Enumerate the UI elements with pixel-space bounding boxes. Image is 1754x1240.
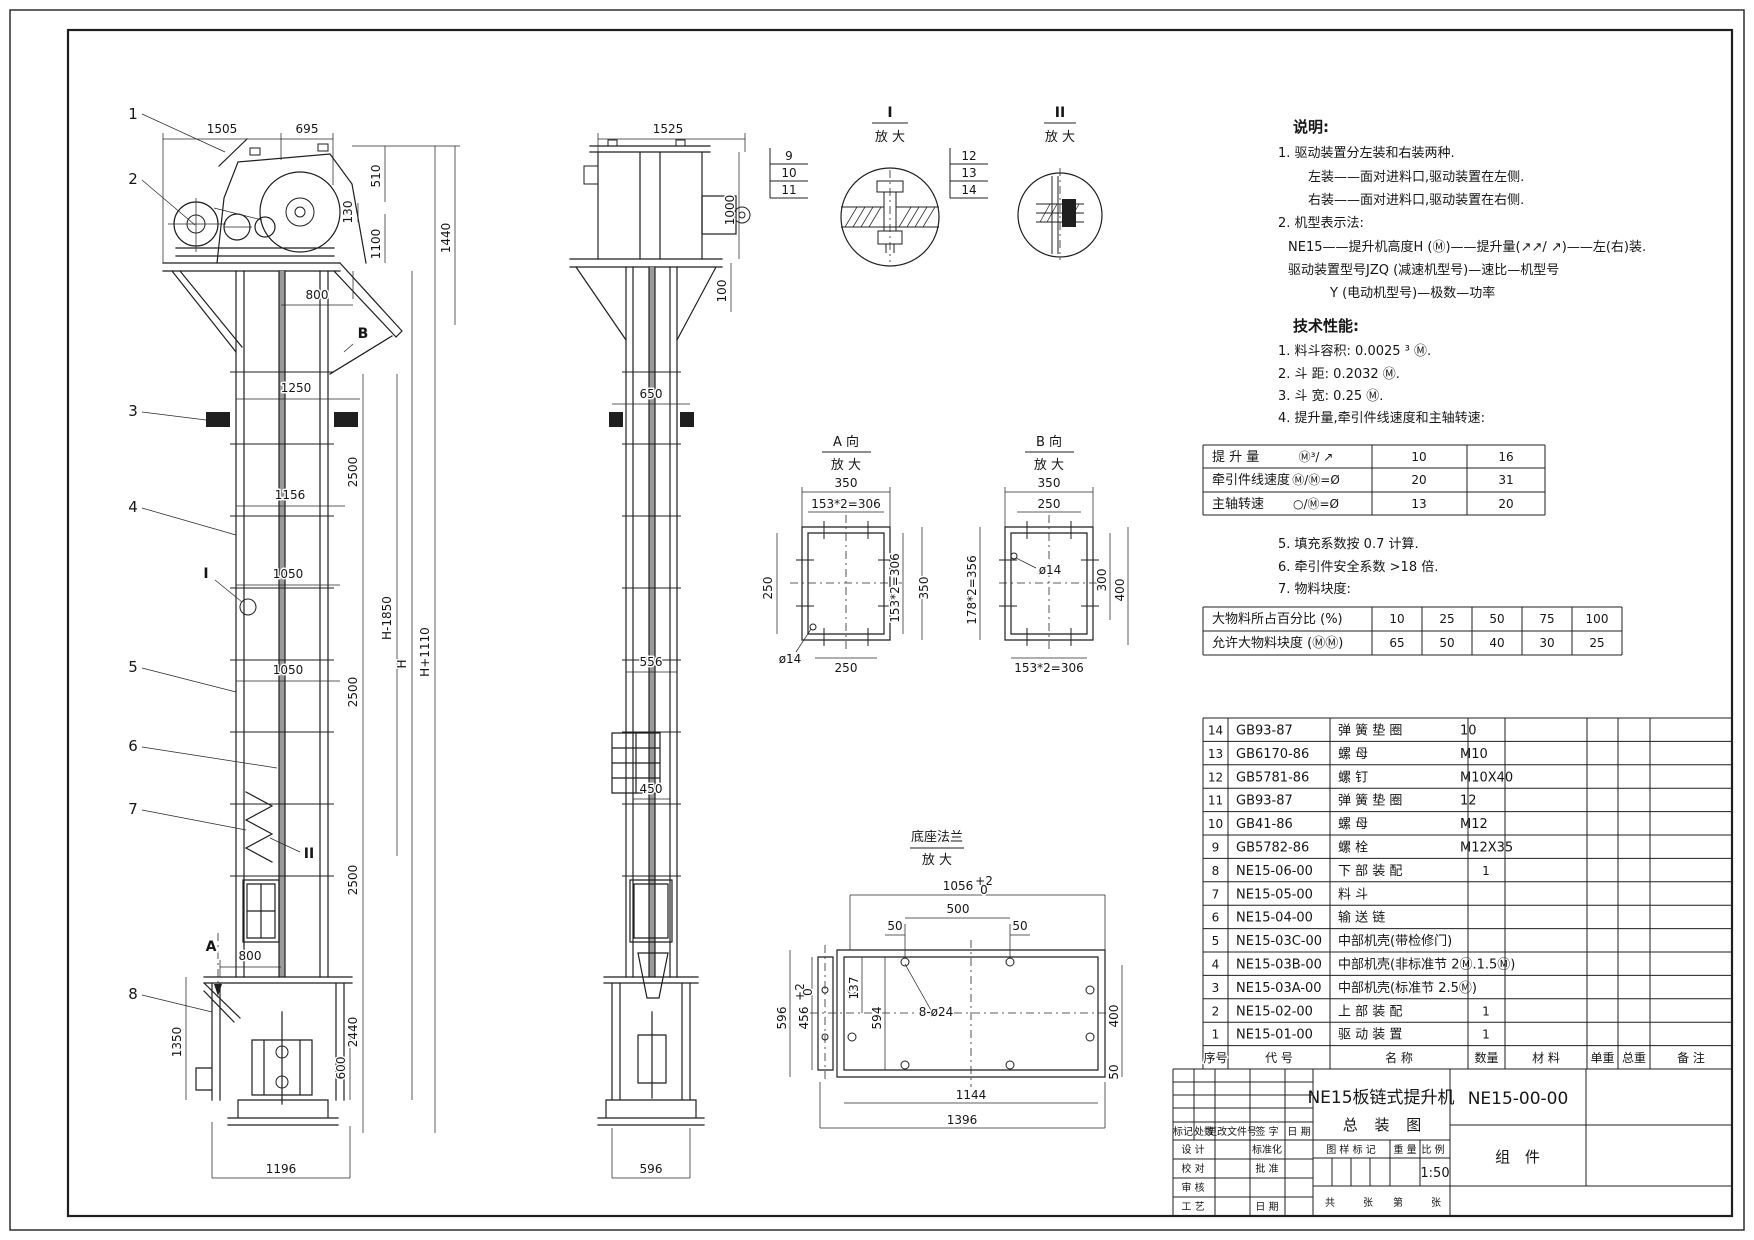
bom-spec: M10X40 — [1460, 770, 1513, 785]
bolt-hole — [1086, 986, 1094, 994]
title-block-cell: 张 — [1363, 1197, 1373, 1209]
title-block-cell: 设 计 — [1181, 1143, 1204, 1156]
performance-value: 16 — [1498, 450, 1513, 464]
head-bolt — [676, 140, 685, 146]
bom-spec: 10 — [1460, 724, 1477, 739]
title-block-cell: 标记 — [1173, 1126, 1193, 1138]
bom-header: 单重 — [1590, 1051, 1614, 1065]
bom-code: GB93-87 — [1236, 724, 1293, 739]
front-dim-label: II — [304, 846, 314, 862]
bom-qty: 1 — [1482, 864, 1490, 878]
bom-header: 总重 — [1622, 1051, 1646, 1065]
bom-name: 上 部 装 配 — [1338, 1004, 1402, 1019]
bom-seq: 2 — [1212, 1004, 1220, 1018]
part-balloon: 1 — [128, 105, 138, 123]
bom-name: 螺 母 — [1338, 817, 1368, 832]
head-bolt — [318, 144, 328, 151]
detail-i-leader — [215, 580, 242, 602]
lump-value: 25 — [1589, 636, 1604, 650]
bolt-hole — [1006, 958, 1014, 966]
title-block-cell: 更改文件号 — [1207, 1125, 1257, 1138]
bom-code: GB5782-86 — [1236, 841, 1309, 856]
note-line: Y (电动机型号)—极数—功率 — [1329, 285, 1495, 301]
part-balloon: 4 — [128, 498, 138, 516]
section-dim-label: 153*2=306 — [1014, 661, 1084, 675]
front-dim-label: 695 — [296, 122, 319, 136]
bolt-hole — [901, 958, 909, 966]
bom-seq: 12 — [1208, 770, 1223, 784]
bom-name: 弹 簧 垫 圈 — [1338, 793, 1402, 809]
front-dim-label: 1440 — [439, 223, 453, 254]
section-dim-label: 350 — [917, 577, 931, 600]
base-dim-label: 596 — [775, 1007, 789, 1030]
front-dim-label: 800 — [239, 949, 262, 963]
front-boot — [196, 977, 352, 1125]
base-dim-label: 456 — [797, 1007, 811, 1030]
lump-value: 65 — [1389, 636, 1404, 650]
part-balloon: 5 — [128, 658, 138, 676]
bom-name: 料 斗 — [1338, 887, 1368, 902]
bom-name: 中部机壳(非标准节 2Ⓜ.1.5Ⓜ) — [1338, 958, 1515, 973]
bom-code: NE15-01-00 — [1236, 1028, 1313, 1043]
drive-centerlines — [168, 198, 262, 252]
chain-strand — [649, 267, 655, 977]
title-block-cell: 批 准 — [1255, 1162, 1278, 1175]
title-block-sheet-label: 组 件 — [1495, 1148, 1545, 1166]
title-block-cell: 共 — [1325, 1197, 1335, 1209]
detail-label: 10 — [781, 166, 796, 180]
lump-value: 10 — [1389, 612, 1404, 626]
section-dim-label: 400 — [1113, 579, 1127, 602]
front-dim-label: 2500 — [346, 865, 360, 896]
bom-qty: 1 — [1482, 1028, 1490, 1042]
note-line: 2. 斗 距: 0.2032 Ⓜ. — [1278, 367, 1400, 382]
front-dim-label: B — [358, 326, 369, 342]
front-dim-label: 1350 — [170, 1027, 184, 1058]
front-dim-label: 1156 — [275, 488, 306, 502]
balloon-leaders — [142, 114, 277, 1012]
bom-code: NE15-03B-00 — [1236, 958, 1322, 973]
title-block-cell: 标准化 — [1252, 1143, 1282, 1156]
bom-code: NE15-05-00 — [1236, 887, 1313, 902]
note-line: 6. 牵引件安全系数 >18 倍. — [1278, 559, 1438, 575]
performance-row-label: 牵引件线速度 — [1212, 472, 1290, 488]
section-dim-label: A 向 — [833, 434, 859, 450]
performance-row-label: 主轴转速 — [1212, 497, 1264, 512]
front-dim-label: 1250 — [281, 381, 312, 395]
bom-seq: 11 — [1208, 794, 1223, 808]
base-dim-label: 放 大 — [922, 853, 952, 868]
part-balloon: 8 — [128, 985, 138, 1003]
base-dim-label: 137 — [847, 977, 861, 1000]
lump-value: 75 — [1539, 612, 1554, 626]
front-view — [142, 114, 460, 1178]
front-dim-label: 1505 — [207, 122, 238, 136]
base-dim-label: 50 — [1107, 1064, 1121, 1079]
performance-value: 10 — [1411, 450, 1426, 464]
section-b-hole-leader — [1016, 558, 1036, 568]
section-dim-label: 350 — [1038, 476, 1061, 490]
detail-label: 13 — [961, 166, 976, 180]
note-line: 5. 填充系数按 0.7 计算. — [1278, 536, 1419, 552]
lump-value: 30 — [1539, 636, 1554, 650]
bom-code: GB5781-86 — [1236, 770, 1309, 785]
detail-i-marker — [240, 599, 256, 615]
section-dim-label: 250 — [1038, 497, 1061, 511]
motor-shaft — [739, 212, 745, 218]
title-block-drawing-type: 总 装 图 — [1343, 1116, 1428, 1134]
bom-name: 螺 钉 — [1338, 770, 1368, 785]
section-dim-label: 153*2=306 — [811, 497, 881, 511]
bom-seq: 1 — [1212, 1028, 1220, 1042]
lump-value: 50 — [1489, 612, 1504, 626]
title-block-cell: 校 对 — [1181, 1162, 1204, 1175]
title-block-cell: 签 字 — [1255, 1125, 1278, 1138]
side-dim-label: 1525 — [653, 122, 684, 136]
bom-seq: 3 — [1212, 981, 1220, 995]
bom-code: NE15-06-00 — [1236, 864, 1313, 879]
section-dim-label: 153*2=306 — [888, 553, 902, 623]
head-wheel — [260, 172, 340, 252]
performance-row-formula: Ⓜ/Ⓜ=Ø — [1292, 473, 1340, 487]
bom-name: 螺 栓 — [1338, 841, 1368, 856]
base-dim-label: 1144 — [956, 1088, 987, 1102]
bucket-chain-zigzag — [246, 792, 272, 862]
chain-strand — [279, 271, 285, 977]
front-dim-label: 600 — [334, 1057, 348, 1080]
bom-header: 序号 — [1203, 1050, 1227, 1065]
bom-header: 名 称 — [1385, 1050, 1413, 1065]
section-dim-label: 250 — [835, 661, 858, 675]
bom-name: 下 部 装 配 — [1338, 864, 1402, 879]
front-dim-label: 2500 — [346, 457, 360, 488]
bolt-hole — [901, 1061, 909, 1069]
front-dim-label: 1050 — [273, 567, 304, 581]
bom-code: NE15-03A-00 — [1236, 981, 1322, 996]
discharge-spout — [584, 166, 598, 184]
base-dim-label: 500 — [947, 902, 970, 916]
bom-code: NE15-04-00 — [1236, 911, 1313, 926]
support-bracket — [206, 412, 230, 427]
head-wheel-hub — [286, 198, 314, 226]
bom-code: GB6170-86 — [1236, 747, 1309, 762]
head-wheel-shaft — [295, 207, 305, 217]
side-head-housing — [590, 146, 710, 259]
side-boot — [598, 977, 704, 1125]
bom-seq: 7 — [1212, 887, 1220, 901]
lump-value: 100 — [1586, 612, 1609, 626]
title-block-cell: 重 量 — [1393, 1143, 1416, 1156]
base-dim-label: 1056 — [943, 879, 974, 893]
section-dim-label: 178*2=356 — [965, 555, 979, 625]
front-dim-label: H-1850 — [380, 596, 394, 640]
generated-annotations: 说明:1. 驱动装置分左装和右装两种.左装——面对进料口,驱动装置在左侧.右装—… — [128, 105, 1732, 1213]
reducer-pulley — [255, 217, 275, 237]
bolt-hole — [1086, 1033, 1094, 1041]
detail-label: 9 — [785, 149, 793, 163]
bom-seq: 13 — [1208, 747, 1223, 761]
section-dim-label: 300 — [1095, 569, 1109, 592]
bom-seq: 8 — [1212, 864, 1220, 878]
note-line: 技术性能: — [1293, 317, 1359, 335]
bom-code: GB93-87 — [1236, 794, 1293, 809]
base-dim-label: 50 — [887, 919, 902, 933]
base-dim-label: 底座法兰 — [911, 829, 963, 845]
front-dim-label: H+1110 — [418, 627, 432, 677]
detail-label: I — [887, 105, 892, 121]
part-balloon: 3 — [128, 402, 138, 420]
side-dim-label: 596 — [640, 1162, 663, 1176]
section-b-centerlines — [999, 515, 1105, 652]
note-line: 1. 料斗容积: 0.0025 ³ Ⓜ. — [1278, 343, 1431, 359]
base-flange-plate — [818, 950, 1105, 1077]
note-line: 说明: — [1293, 118, 1329, 136]
part-balloon: 7 — [128, 800, 138, 818]
lump-value: 50 — [1439, 636, 1454, 650]
bom-name: 螺 母 — [1338, 747, 1368, 762]
detail-label: 放 大 — [1045, 130, 1075, 145]
head-bolt — [608, 140, 617, 146]
bom-code: NE15-03C-00 — [1236, 934, 1322, 949]
base-flange-centerlines — [810, 940, 1115, 1087]
performance-value: 20 — [1498, 497, 1513, 511]
detail-label: 11 — [781, 183, 796, 197]
bom-seq: 4 — [1212, 958, 1220, 972]
bom-spec: M12 — [1460, 817, 1488, 832]
front-dim-label: 1196 — [266, 1162, 297, 1176]
title-block-cell: 日 期 — [1255, 1201, 1278, 1213]
front-dim-label: 510 — [369, 165, 383, 188]
bom-header: 数量 — [1474, 1050, 1498, 1065]
front-dim-label: 2440 — [346, 1017, 360, 1048]
support-bracket — [334, 412, 358, 427]
side-dim-label: 100 — [715, 280, 729, 303]
base-dim-label: 8-ø24 — [919, 1005, 954, 1019]
side-dim-label: 556 — [640, 655, 663, 669]
front-dim-label: 130 — [341, 201, 355, 224]
lump-value: 25 — [1439, 612, 1454, 626]
note-line: 右装——面对进料口,驱动装置在右侧. — [1308, 193, 1524, 208]
support-bracket — [609, 412, 623, 427]
base-dim-label: 50 — [1012, 919, 1027, 933]
inspection-door — [243, 880, 279, 942]
performance-value: 13 — [1411, 497, 1426, 511]
detail-label: 12 — [961, 149, 976, 163]
bolt-hole — [1006, 1061, 1014, 1069]
front-dim-label: 2500 — [346, 677, 360, 708]
side-dim-label: 650 — [640, 387, 663, 401]
title-block-cell: 日 期 — [1287, 1126, 1310, 1138]
detail-label: 14 — [961, 183, 976, 197]
note-line: NE15——提升机高度H (Ⓜ)——提升量(↗↗/ ↗)——左(右)装. — [1288, 239, 1646, 255]
section-dim-label: 放 大 — [831, 458, 861, 473]
section-dim-label: B 向 — [1036, 434, 1062, 450]
title-block-drawing-number: NE15-00-00 — [1468, 1089, 1569, 1109]
note-line: 4. 提升量,牵引件线速度和主轴转速: — [1278, 410, 1485, 426]
performance-row-formula: Ⓜ³/ ↗ — [1299, 450, 1334, 464]
section-dim-label: 350 — [835, 476, 858, 490]
title-block: NE15板链式提升机 总 装 图 NE15-00-00 组 件 1:50 — [1173, 1069, 1732, 1216]
note-line: 7. 物料块度: — [1278, 581, 1351, 597]
bom-name: 输 送 链 — [1338, 910, 1385, 926]
front-dim-label: 800 — [306, 288, 329, 302]
bom-seq: 9 — [1212, 841, 1220, 855]
front-dim-label: 1050 — [273, 663, 304, 677]
bom-seq: 14 — [1208, 724, 1223, 738]
section-dim-label: 放 大 — [1034, 458, 1064, 473]
bom-header: 备 注 — [1677, 1050, 1705, 1065]
note-line: 2. 机型表示法: — [1278, 216, 1364, 231]
section-a-centerlines — [790, 515, 902, 652]
note-line: 3. 斗 宽: 0.25 Ⓜ. — [1278, 388, 1383, 404]
front-dim-label: H — [395, 659, 409, 668]
bom-code: GB41-86 — [1236, 817, 1293, 832]
note-line: 左装——面对进料口,驱动装置在左侧. — [1308, 170, 1524, 185]
performance-row-formula: ○/Ⓜ=Ø — [1293, 497, 1339, 511]
detail-label: 放 大 — [875, 130, 905, 145]
note-line: 1. 驱动装置分左装和右装两种. — [1278, 146, 1455, 161]
support-bracket — [680, 412, 694, 427]
performance-row-label: 提 升 量 — [1212, 449, 1259, 465]
side-dim-label: 1000 — [723, 195, 737, 226]
bom-seq: 10 — [1208, 817, 1223, 831]
section-dim-label: ø14 — [779, 652, 802, 666]
base-dim-label: 1396 — [947, 1113, 978, 1127]
detail-ii-nut — [1062, 199, 1076, 227]
lump-row-label: 允许大物料块度 (ⓂⓂ) — [1212, 635, 1343, 651]
front-dim-label: 1100 — [369, 229, 383, 260]
note-line: 驱动装置型号JZQ (减速机型号)—速比—机型号 — [1288, 263, 1559, 278]
section-dim-label: ø14 — [1039, 563, 1062, 577]
section-dim-label: 250 — [761, 577, 775, 600]
bom-seq: 6 — [1212, 911, 1220, 925]
detail-label: II — [1055, 105, 1065, 121]
title-block-cell: 工 艺 — [1181, 1201, 1204, 1213]
base-dim-label: 0 — [801, 988, 815, 996]
front-dim-label: I — [203, 566, 208, 582]
performance-value: 31 — [1498, 473, 1513, 487]
bom-header: 代 号 — [1265, 1051, 1293, 1065]
base-dim-label: 400 — [1107, 1005, 1121, 1028]
bom-name: 弹 簧 垫 圈 — [1338, 723, 1402, 739]
performance-value: 20 — [1411, 473, 1426, 487]
title-block-cell: 第 — [1393, 1196, 1403, 1209]
base-dim-label: 0 — [980, 883, 988, 897]
bom-name: 中部机壳(带检修门) — [1338, 934, 1452, 949]
part-balloon: 2 — [128, 170, 138, 188]
lump-value: 40 — [1489, 636, 1504, 650]
cad-canvas: NE15板链式提升机 总 装 图 NE15-00-00 组 件 1:50 说明:… — [0, 0, 1754, 1240]
bom-header: 材 料 — [1532, 1051, 1560, 1065]
front-dim-label: A — [206, 939, 217, 955]
bom-seq: 5 — [1212, 934, 1220, 948]
head-bolt — [250, 148, 260, 155]
bom-name: 驱 动 装 置 — [1338, 1028, 1402, 1043]
title-block-cell: 图 样 标 记 — [1326, 1143, 1376, 1156]
title-block-product-name: NE15板链式提升机 — [1307, 1088, 1454, 1108]
lump-row-label: 大物料所占百分比 (%) — [1212, 612, 1343, 627]
bom-spec: M10 — [1460, 747, 1488, 762]
bom-qty: 1 — [1482, 1004, 1490, 1018]
title-block-cell: 比 例 — [1421, 1143, 1444, 1156]
base-dim-label: 594 — [870, 1007, 884, 1030]
drawing-sheet: NE15板链式提升机 总 装 图 NE15-00-00 组 件 1:50 说明:… — [0, 0, 1754, 1240]
bom-spec: M12X35 — [1460, 841, 1513, 856]
side-dim-label: 450 — [640, 782, 663, 796]
side-platform — [570, 259, 722, 340]
part-balloon: 6 — [128, 737, 138, 755]
title-block-scale: 1:50 — [1420, 1166, 1449, 1181]
title-block-cell: 审 核 — [1181, 1181, 1204, 1194]
bom-code: NE15-02-00 — [1236, 1004, 1313, 1019]
bom-name: 中部机壳(标准节 2.5Ⓜ) — [1338, 981, 1477, 996]
title-block-cell: 张 — [1431, 1197, 1441, 1209]
bom-spec: 12 — [1460, 794, 1477, 809]
bolt-hole — [848, 1033, 856, 1041]
